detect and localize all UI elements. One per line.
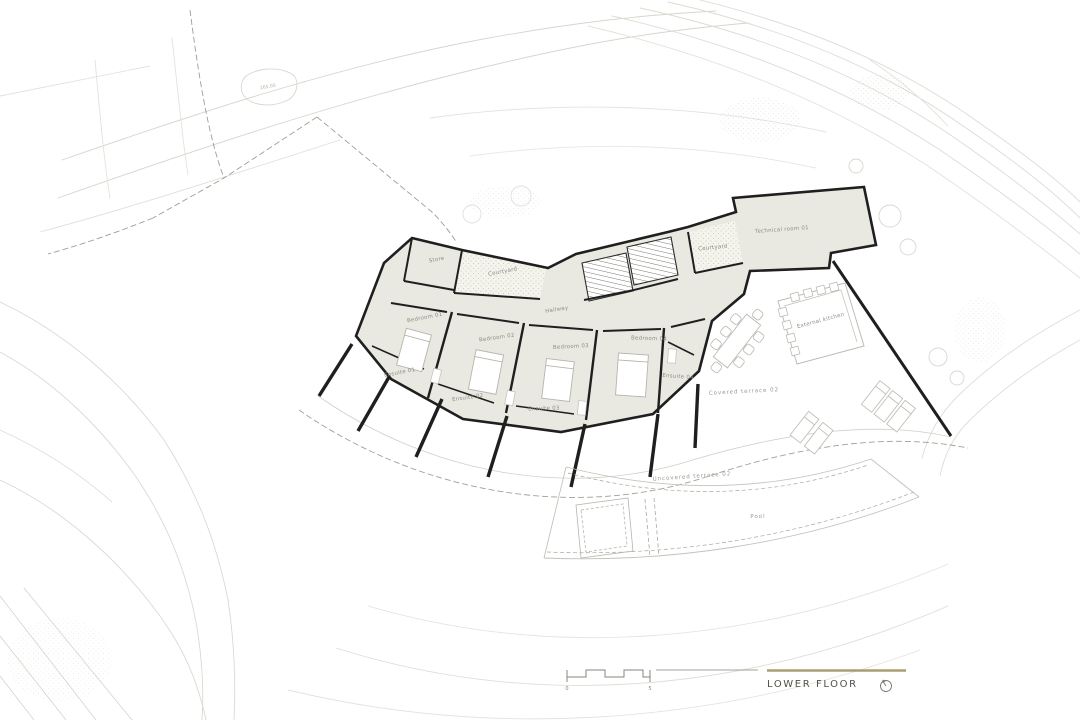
floor-plan-sheet: Store Courtyard Hallway Bedroom 01 Bedro…: [0, 0, 1080, 720]
lounger-icons: [790, 381, 915, 454]
ensuite-03-label: Ensuite 03: [528, 405, 560, 412]
pool-area: [544, 459, 919, 559]
external-kitchen-label: External kitchen: [796, 312, 845, 330]
sheet-title: LOWER FLOOR: [767, 679, 858, 690]
contour-lines-bottom-center: [288, 564, 948, 719]
spot-elevation-label: 165.00: [259, 83, 276, 92]
scale-bar: [567, 670, 758, 682]
terrace-setback-dashed: [299, 410, 968, 497]
floor-plan-canvas: Store Courtyard Hallway Bedroom 01 Bedro…: [0, 0, 1080, 720]
pool-label: Pool: [750, 514, 765, 521]
uncovered-terrace-label: Uncovered terrace 02: [652, 471, 731, 482]
bedroom-04-label: Bedroom 04: [631, 335, 667, 342]
pool-steps: [576, 498, 633, 558]
scale-start-number: 0: [565, 686, 568, 692]
scale-end-number: 5: [648, 686, 651, 692]
covered-terrace-label: Covered terrace 02: [709, 387, 779, 397]
north-indicator-icon: [881, 680, 892, 692]
contour-lines-topleft: [0, 11, 748, 232]
